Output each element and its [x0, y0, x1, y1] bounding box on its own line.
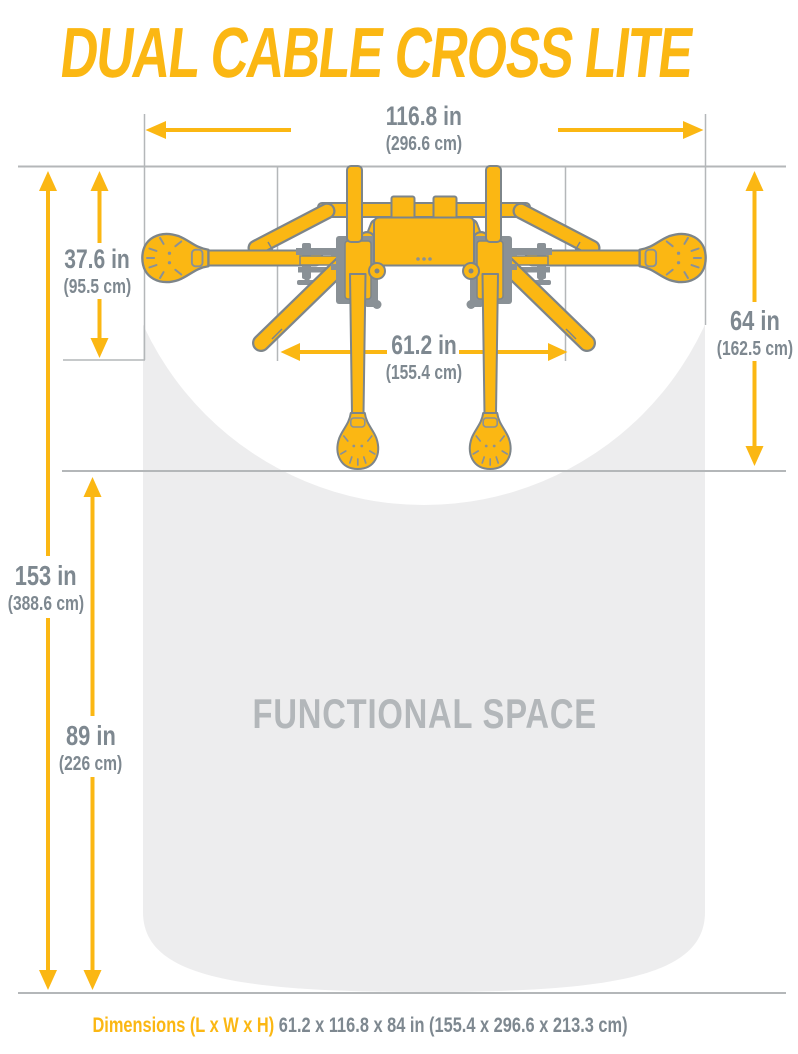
dim-inner-width-cm: (155.4 cm): [386, 363, 462, 383]
product-title: DUAL CABLE CROSS LITE: [57, 18, 696, 89]
header: DUAL CABLE CROSS LITE #G424: [57, 18, 798, 89]
dim-machine-depth: 64 in (162.5 cm): [662, 307, 798, 359]
body-dots: [416, 257, 432, 261]
dim-total-width-in: 116.8 in: [386, 103, 462, 130]
dim-base-depth-cm: (95.5 cm): [63, 277, 131, 297]
dim-functional-depth-cm: (226 cm): [59, 754, 122, 774]
dim-machine-depth-cm: (162.5 cm): [716, 339, 792, 359]
dim-base-depth: 37.6 in (95.5 cm): [7, 246, 187, 297]
dim-base-depth-in: 37.6 in: [64, 246, 130, 273]
dimension-diagram-page: DUAL CABLE CROSS LITE #G424 116.8 in (29…: [0, 0, 798, 1054]
dim-total-length-cm: (388.6 cm): [8, 594, 84, 614]
dim-total-width-cm: (296.6 cm): [386, 134, 462, 154]
footer-dimensions: Dimensions (L x W x H) 61.2 x 116.8 x 84…: [0, 1014, 720, 1038]
dim-total-length-in: 153 in: [15, 562, 77, 590]
functional-space-label: FUNCTIONAL SPACE: [144, 690, 706, 738]
footer-value: 61.2 x 116.8 x 84 in (155.4 x 296.6 x 21…: [279, 1014, 628, 1037]
dim-inner-width: 61.2 in (155.4 cm): [324, 332, 524, 383]
dim-machine-depth-in: 64 in: [730, 307, 780, 335]
footer-label: Dimensions (L x W x H): [92, 1014, 274, 1037]
dim-total-length: 153 in (388.6 cm): [0, 562, 116, 614]
dimension-diagram: [0, 0, 798, 1054]
dim-functional-depth-in: 89 in: [66, 722, 116, 750]
dim-total-width: 116.8 in (296.6 cm): [324, 103, 524, 154]
dim-functional-depth: 89 in (226 cm): [21, 722, 161, 774]
dim-inner-width-in: 61.2 in: [391, 332, 457, 359]
